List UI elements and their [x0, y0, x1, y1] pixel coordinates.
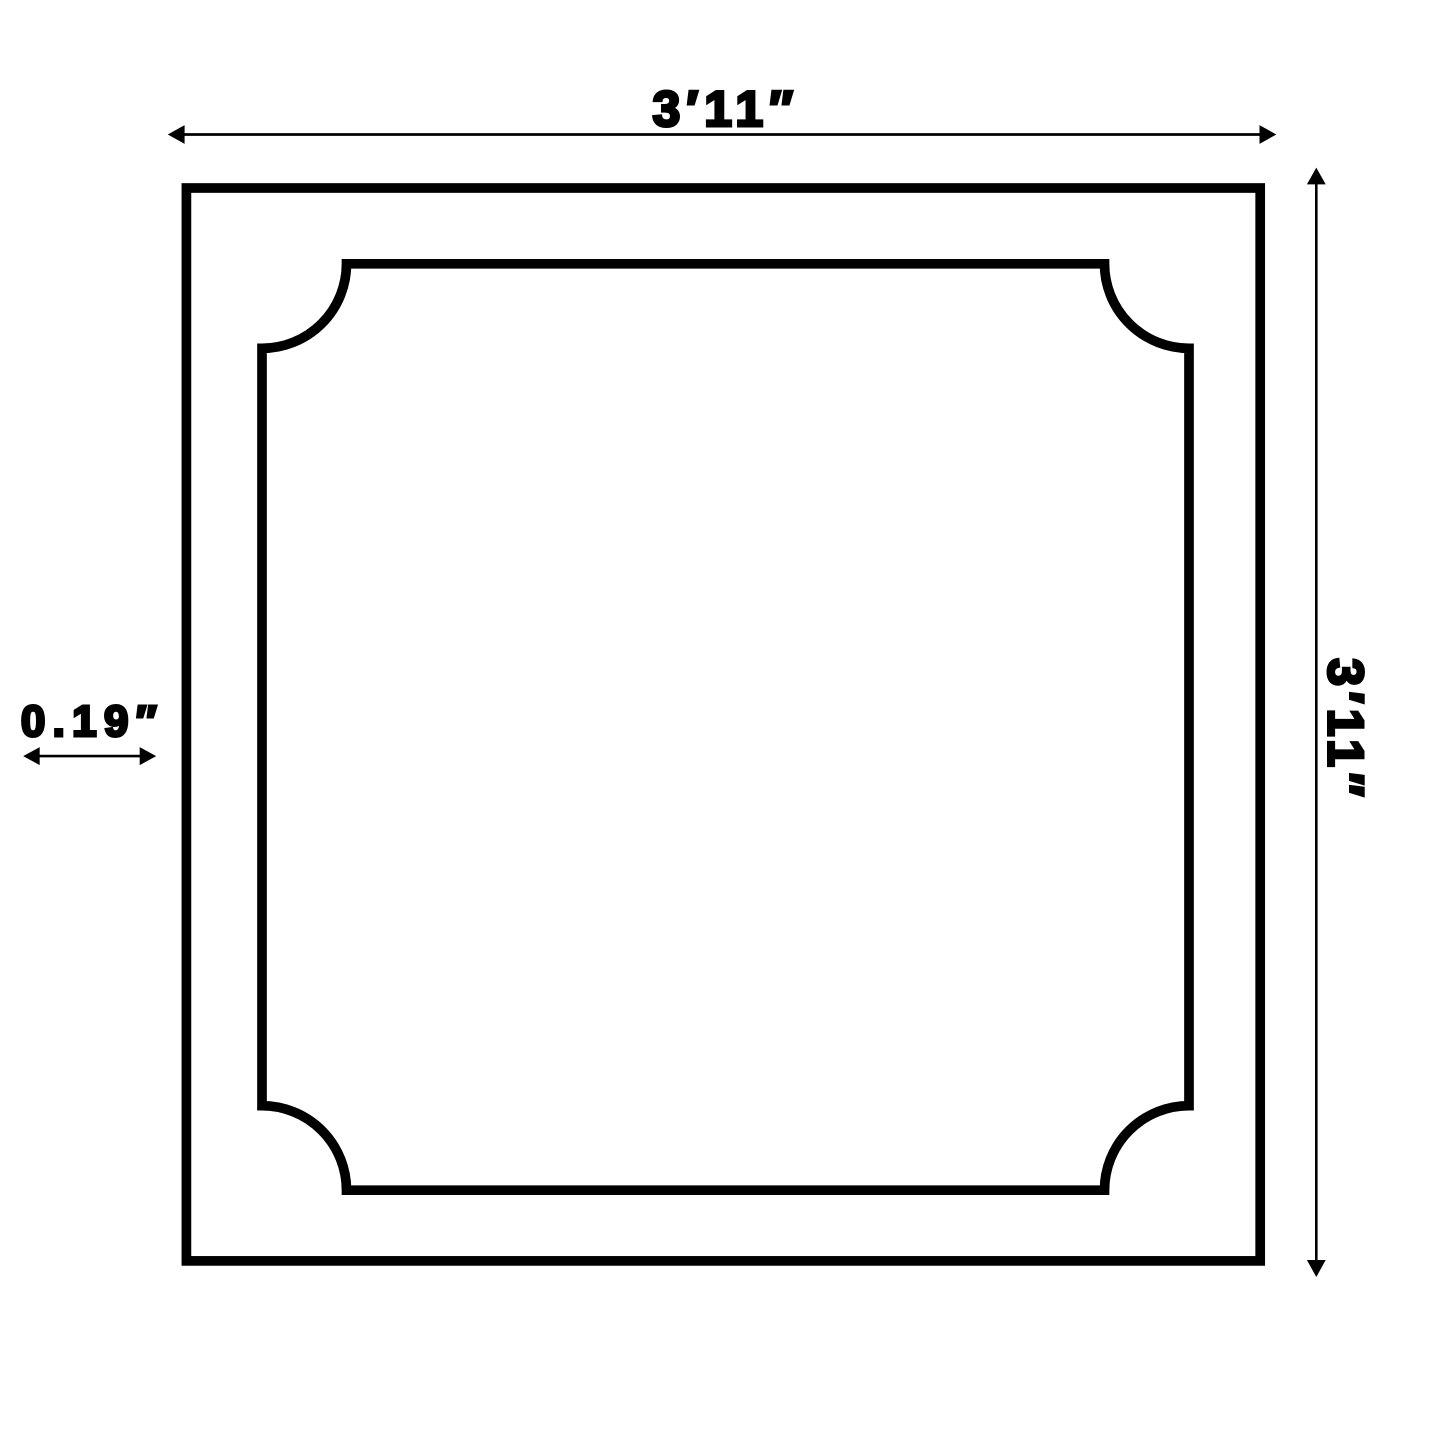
svg-text:3′11″: 3′11″ [1317, 658, 1373, 802]
svg-text:3′11″: 3′11″ [652, 81, 799, 137]
svg-text:0.19″: 0.19″ [21, 697, 164, 746]
